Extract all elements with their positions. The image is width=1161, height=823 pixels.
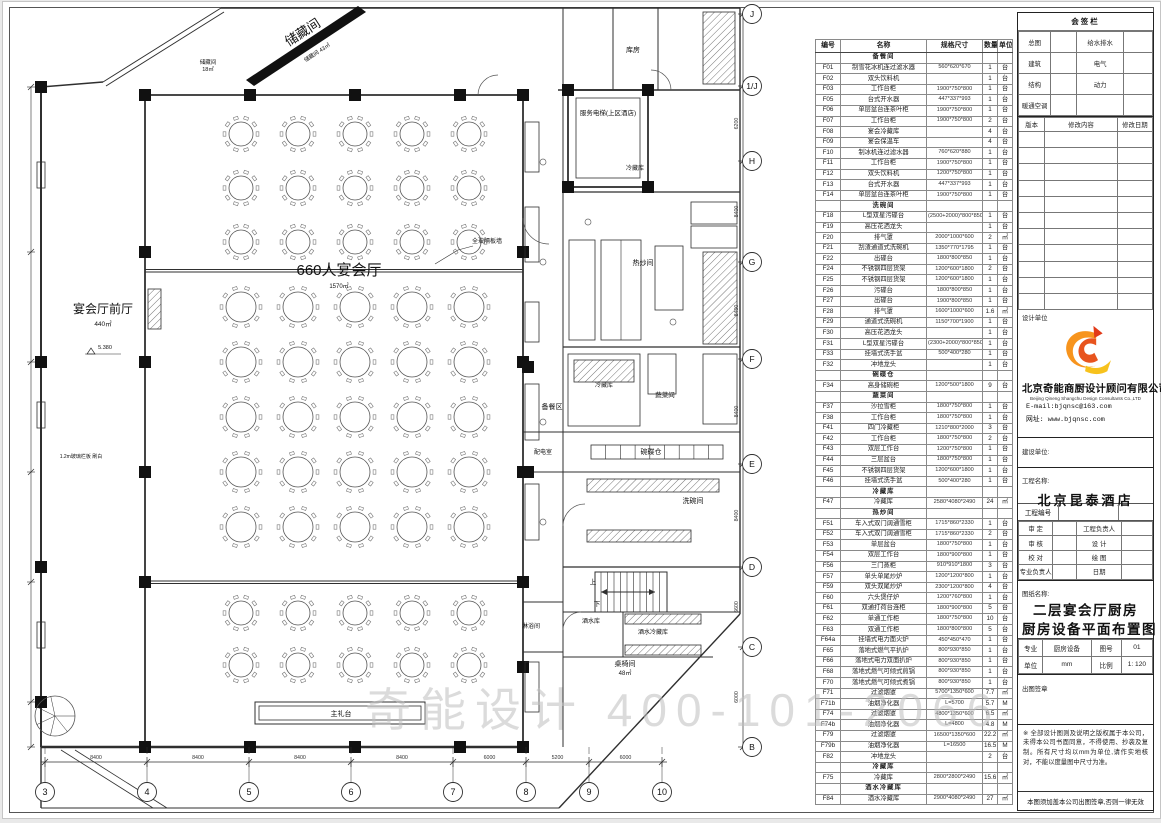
room-label: 洗碗间 [683, 496, 704, 505]
schedule-row: F43双层工作台1200*750*8001台 [816, 444, 1013, 455]
room-label: 宴会厅前厅 [73, 301, 133, 316]
schedule-row: F84酒水冷藏库2900*4080*249027㎡ [816, 794, 1013, 805]
room-label: 5.380 [98, 345, 112, 351]
project-name-box: 工程名称: 北京昆泰酒店 [1018, 468, 1153, 504]
approval-row: 审 定工程负责人 [1019, 522, 1153, 536]
schedule-row: F64a挂墙式电力面火炉450*450*4701台 [816, 635, 1013, 646]
banquet-table [283, 292, 313, 322]
design-firm-label: 设计单位 [1022, 313, 1048, 322]
schedule-row: F56三门蒸柜910*910*18003台 [816, 561, 1013, 572]
room-label: 冷藏库 [626, 164, 644, 172]
copyright-notes: ※ 全部设计图则及说明之版权属于本公司，未得本公司书面同意，不得使用、抄袭及复制… [1018, 725, 1153, 792]
banquet-table [457, 122, 481, 146]
approval-row: 审 核设 计 [1019, 536, 1153, 550]
banquet-table [397, 512, 427, 542]
schedule-row: F51车入式双门阔通雪柜1715*860*23301台 [816, 519, 1013, 530]
schedule-row: F08宴会冷藏库4台 [816, 127, 1013, 138]
banquet-table [400, 176, 424, 200]
dimension-text: 8400 [396, 755, 408, 761]
company-website: 网址: www.bjqnsc.com [1026, 413, 1149, 424]
grid-bubble-label: 4 [144, 787, 149, 797]
approval-row: 校 对绘 图 [1019, 550, 1153, 564]
grid-bubble-label: B [749, 742, 755, 752]
grid-bubble-label: D [749, 562, 755, 572]
schedule-row: F34高身储碗柜1200*500*18009台 [816, 381, 1013, 392]
banquet-table [454, 512, 484, 542]
banquet-table [400, 230, 424, 254]
banquet-table [457, 601, 481, 625]
grid-bubble-label: G [749, 257, 756, 267]
signature-bar-title: 会签栏 [1018, 13, 1153, 31]
revision-table: 版本修改内容修改日期 [1018, 117, 1153, 310]
banquet-table [286, 653, 310, 677]
banquet-table [286, 122, 310, 146]
client-label: 建设单位: [1022, 449, 1049, 456]
room-label: 热炒间 [633, 258, 654, 267]
room-label: 1.2m玻璃栏板 刷白 [60, 453, 103, 460]
schedule-row: F62单通工作柜1800*750*80010台 [816, 614, 1013, 625]
room-label: 主礼台 [331, 709, 352, 718]
schedule-row: F12双头饮料机1200*750*8001台 [816, 169, 1013, 180]
approval-grid: 审 定工程负责人审 核设 计校 对绘 图专业负责人日期 [1018, 521, 1153, 581]
banquet-table [229, 601, 253, 625]
drawing-title-label: 图纸名称: [1022, 591, 1049, 598]
schedule-row: F79过滤烟罩16500*1350*60022.2㎡ [816, 731, 1013, 742]
schedule-row: F74b油烟净化器L=48004.8M [816, 720, 1013, 731]
schedule-row: F41四门冷藏柜1210*800*20003台 [816, 423, 1013, 434]
dimension-text: 8400 [734, 406, 740, 418]
schedule-row: F68落地式燃气可倾式煎锅800*930*8501台 [816, 667, 1013, 678]
revision-empty-row [1019, 212, 1153, 228]
schedule-row: F25不锈钢四层货架1200*600*18001台 [816, 275, 1013, 286]
banquet-table [400, 601, 424, 625]
grid-bubble-label: E [749, 459, 755, 469]
banquet-table [226, 512, 256, 542]
grid-bubble-label: 1/J [746, 81, 757, 91]
dimension-text: 6000 [620, 755, 632, 761]
schedule-row: F45不锈钢四层货架1200*600*18001台 [816, 466, 1013, 477]
schedule-row: F24不锈钢四层货架1200*600*18002台 [816, 264, 1013, 275]
room-label: 储藏间 [200, 58, 217, 66]
dimension-text: 6200 [734, 118, 740, 130]
revision-empty-row [1019, 180, 1153, 196]
dimension-text: 8400 [734, 206, 740, 218]
schedule-row: 备餐间 [816, 53, 1013, 64]
banquet-table [343, 653, 367, 677]
schedule-row: F70落地式燃气可倾式煮锅800*930*8501台 [816, 678, 1013, 689]
schedule-row: F01制雪花冰机连过滤水器560*620*6701台 [816, 63, 1013, 74]
schedule-row: 冷藏库 [816, 762, 1013, 773]
signature-row: 结构动力 [1019, 74, 1153, 95]
banquet-table [283, 512, 313, 542]
banquet-table [229, 122, 253, 146]
stamp-box: 出图签章 [1018, 675, 1153, 725]
room-label: 淋浴间 [522, 622, 540, 630]
banquet-table [343, 122, 367, 146]
title-block: 会签栏 总图给水排水建筑电气结构动力暖通空调 版本修改内容修改日期 设计单位 北… [1017, 12, 1154, 811]
schedule-row: F60六头煲仔炉1200*760*8001台 [816, 593, 1013, 604]
schedule-row: F20排气罩2000*1000*6002㎡ [816, 233, 1013, 244]
revision-empty-row [1019, 245, 1153, 261]
schedule-row: F18L型双星污碟台(2500+2000)*800*8501台 [816, 211, 1013, 222]
schedule-row: F31L型双星污碟台(2300+2000)*800*8501台 [816, 339, 1013, 350]
schedule-row: 碗碟仓 [816, 370, 1013, 381]
schedule-row: F11工作台柜1900*750*8001台 [816, 158, 1013, 169]
schedule-row: F65落地式燃气平扒炉800*930*8501台 [816, 646, 1013, 657]
room-label: 服务电梯(上区酒店) [580, 108, 636, 117]
schedule-row: F79b油烟净化器L=1650016.5M [816, 741, 1013, 752]
drawing-title-block: 图纸名称: 二层宴会厅厨房 厨房设备平面布置图 [1018, 581, 1153, 639]
project-number-label: 工程编号 [1018, 504, 1059, 520]
room-label: 备餐区 [542, 402, 563, 411]
banquet-table [283, 347, 313, 377]
banquet-table [283, 457, 313, 487]
schedule-row: F33挂墙式洗手盆500*400*2801台 [816, 349, 1013, 360]
drawing-title-line2: 厨房设备平面布置图 [1022, 620, 1149, 640]
revision-header-row: 版本修改内容修改日期 [1019, 118, 1153, 132]
schedule-row: F10制冰机连过滤水器760*620*8801台 [816, 148, 1013, 159]
room-label: 配电室 [534, 448, 552, 456]
schedule-row: F28排气罩1600*1000*6001.6㎡ [816, 307, 1013, 318]
schedule-row: F75冷藏库2800*2800*249015.6㎡ [816, 773, 1013, 784]
banquet-table [226, 292, 256, 322]
schedule-row: F05台式开水器447*337*9931台 [816, 95, 1013, 106]
grid-bubble-label: C [749, 642, 755, 652]
schedule-row: F71b油烟净化器L=57005.7M [816, 699, 1013, 710]
schedule-row: F13台式开水器447*337*9931台 [816, 180, 1013, 191]
banquet-table [457, 653, 481, 677]
dimension-text: 6600 [734, 601, 740, 613]
banquet-table [229, 653, 253, 677]
schedule-row: F54双层工作台1800*900*8001台 [816, 550, 1013, 561]
schedule-row: F07工作台柜1900*750*8002台 [816, 116, 1013, 127]
schedule-row: 冷藏库 [816, 487, 1013, 498]
company-name: 北京奇能商厨设计顾问有限公司 [1022, 380, 1149, 395]
banquet-table [229, 176, 253, 200]
schedule-row: F26污碟台1800*800*8501台 [816, 286, 1013, 297]
banquet-table [457, 176, 481, 200]
banquet-table [286, 230, 310, 254]
banquet-table [400, 122, 424, 146]
banquet-table [397, 457, 427, 487]
schedule-row: F32冲地龙头1台 [816, 360, 1013, 371]
schedule-row: F82冲地龙头2台 [816, 752, 1013, 763]
grid-bubble-label: 5 [246, 787, 251, 797]
room-label: 48㎡ [619, 669, 632, 677]
equipment-schedule-table: 编号名称规格尺寸数量单位备餐间F01制雪花冰机连过滤水器560*620*6701… [815, 39, 1013, 805]
dimension-text: 8400 [294, 755, 306, 761]
dimension-text: 8400 [734, 305, 740, 317]
banquet-table [397, 292, 427, 322]
banquet-table [343, 601, 367, 625]
schedule-row: F29通道式洗碗机1150*700*19001台 [816, 317, 1013, 328]
schedule-row: F63双通工作柜1800*800*8005台 [816, 625, 1013, 636]
room-label: 660人宴会厅 [296, 261, 381, 279]
banquet-table [340, 402, 370, 432]
schedule-row: F46挂墙式洗手盆500*400*2801台 [816, 476, 1013, 487]
room-label: 酒水冷藏库 [638, 628, 668, 636]
schedule-row: 热炒间 [816, 508, 1013, 519]
schedule-row: F22出碟台1800*800*8501台 [816, 254, 1013, 265]
schedule-row: F21刮渣通道式洗碗机1350*770*17951台 [816, 243, 1013, 254]
revision-empty-row [1019, 261, 1153, 277]
banquet-table [454, 292, 484, 322]
grid-bubble-label: 6 [348, 787, 353, 797]
dimension-text: 6000 [484, 755, 496, 761]
room-label: 库房 [626, 45, 640, 54]
schedule-row: F61双通打荷台连柜1800*900*8005台 [816, 603, 1013, 614]
schedule-row: F19高压花洒龙头1台 [816, 222, 1013, 233]
room-label: 18㎡ [202, 65, 214, 73]
schedule-row: F09宴会保温车4台 [816, 137, 1013, 148]
room-label: 桌椅间 [615, 659, 636, 668]
schedule-row: F06单层盆台连茶叶柜1900*750*8001台 [816, 105, 1013, 116]
banquet-table [454, 402, 484, 432]
dimension-text: 8400 [90, 755, 102, 761]
grid-bubble-label: 10 [657, 787, 667, 797]
schedule-row: F02双头饮料机1台 [816, 74, 1013, 85]
schedule-row: 酒水冷藏库 [816, 783, 1013, 794]
company-email: E-mail:bjqnsc@163.com [1026, 403, 1149, 411]
room-label: 下 [594, 600, 601, 608]
revision-empty-row [1019, 132, 1153, 148]
banquet-table [397, 402, 427, 432]
floor-plan-svg: 3840048400584006840076000852009600010J1/… [3, 2, 811, 823]
schedule-row: F42工作台柜1800*750*8002台 [816, 434, 1013, 445]
banquet-table [340, 512, 370, 542]
signature-table: 总图给水排水建筑电气结构动力暖通空调 [1018, 31, 1153, 116]
banquet-table [343, 230, 367, 254]
revision-empty-row [1019, 148, 1153, 164]
revision-empty-row [1019, 229, 1153, 245]
room-label: 碗碟仓 [641, 447, 662, 456]
schedule-row: F27出碟台1900*800*8501台 [816, 296, 1013, 307]
revision-empty-row [1019, 293, 1153, 309]
room-label: 1570㎡ [329, 282, 348, 290]
banquet-table [343, 176, 367, 200]
banquet-table [226, 347, 256, 377]
banquet-table [286, 176, 310, 200]
signature-row: 总图给水排水 [1019, 32, 1153, 53]
banquet-table [397, 347, 427, 377]
banquet-table [340, 292, 370, 322]
room-label: 酒水库 [582, 617, 600, 625]
validity-note: 本图须加盖本公司出图签章,否则一律无效 [1018, 792, 1153, 810]
schedule-row: F14单层盆台连茶叶柜1900*750*8001台 [816, 190, 1013, 201]
schedule-row: F38工作台柜1800*750*8001台 [816, 413, 1013, 424]
room-label: 蔬菜间 [655, 390, 675, 399]
drawing-sheet-page: { "watermark": "奇能设计 400-101-2066", "pla… [0, 0, 1161, 821]
client-box: 建设单位: [1018, 438, 1153, 468]
revision-empty-row [1019, 164, 1153, 180]
meta-grid: 专业厨房设备图号01单位mm比例1: 120 [1018, 639, 1153, 675]
dimension-text: 6000 [734, 691, 740, 703]
schedule-row: F44三层盆台1800*750*8001台 [816, 455, 1013, 466]
grid-bubble-label: H [749, 156, 755, 166]
drawing-sheet: 3840048400584006840076000852009600010J1/… [2, 1, 1161, 819]
banquet-table [283, 402, 313, 432]
schedule-row: F30高压花洒龙头1台 [816, 328, 1013, 339]
banquet-table [454, 457, 484, 487]
schedule-header-row: 编号名称规格尺寸数量单位 [816, 40, 1013, 53]
project-name-label: 工程名称: [1022, 478, 1049, 485]
banquet-table [340, 347, 370, 377]
grid-bubble-label: F [749, 354, 754, 364]
schedule-row: F66落地式电力双面扒炉800*930*8501台 [816, 656, 1013, 667]
project-number-row: 工程编号 [1018, 504, 1153, 521]
banquet-table [286, 601, 310, 625]
schedule-row: F59双头双尾炒炉2300*1200*8004台 [816, 582, 1013, 593]
revision-empty-row [1019, 277, 1153, 293]
schedule-row: F74过滤烟罩4800*1350*6006.5㎡ [816, 709, 1013, 720]
meta-row: 单位mm比例1: 120 [1019, 656, 1153, 673]
drawing-title-line1: 二层宴会厅厨房 [1022, 601, 1149, 621]
room-label: 上 [590, 577, 597, 586]
dimension-text: 8400 [734, 510, 740, 522]
grid-bubble-label: J [750, 9, 754, 19]
room-label: 全玻隔板墙 [472, 237, 502, 245]
schedule-row: F52车入式双门阔通雪柜1715*860*23302台 [816, 529, 1013, 540]
banquet-table [229, 230, 253, 254]
signature-row: 建筑电气 [1019, 53, 1153, 74]
room-label: 440㎡ [94, 319, 112, 328]
schedule-row: 洗碗间 [816, 201, 1013, 212]
grid-bubble-label: 3 [42, 787, 47, 797]
grid-bubble-label: 9 [586, 787, 591, 797]
company-logo-icon [1058, 325, 1114, 375]
stamp-label: 出图签章 [1022, 686, 1048, 693]
banquet-table [226, 402, 256, 432]
banquet-table [226, 457, 256, 487]
banquet-table [454, 347, 484, 377]
schedule-row: F57单头单尾炒炉1200*1200*8001台 [816, 572, 1013, 583]
project-number-value [1059, 504, 1119, 520]
dimension-text: 5200 [552, 755, 564, 761]
banquet-table [400, 653, 424, 677]
schedule-row: F03工作台柜1900*750*8001台 [816, 84, 1013, 95]
meta-row: 专业厨房设备图号01 [1019, 639, 1153, 656]
grid-bubble-label: 8 [523, 787, 528, 797]
schedule-row: F71过滤烟罩5700*1350*6007.7㎡ [816, 688, 1013, 699]
grid-bubble-label: 7 [450, 787, 455, 797]
revision-empty-row [1019, 196, 1153, 212]
signature-row: 暖通空调 [1019, 95, 1153, 116]
company-name-en: Beijing Qineng Shangchu Design Consultan… [1022, 396, 1149, 401]
signature-block: 会签栏 总图给水排水建筑电气结构动力暖通空调 [1018, 13, 1153, 117]
schedule-row: F53单层盆台1800*750*8001台 [816, 540, 1013, 551]
dimension-text: 8400 [192, 755, 204, 761]
room-label: 冷藏库 [595, 381, 613, 389]
approval-row: 专业负责人日期 [1019, 565, 1153, 579]
banquet-table [340, 457, 370, 487]
schedule-row: F37沙拉雪柜1800*750*8001台 [816, 402, 1013, 413]
schedule-row: F47冷藏库2580*4080*249024㎡ [816, 497, 1013, 508]
design-firm-block: 设计单位 北京奇能商厨设计顾问有限公司 Beijing Qineng Shang… [1018, 310, 1153, 438]
schedule-row: 蔬菜间 [816, 392, 1013, 403]
